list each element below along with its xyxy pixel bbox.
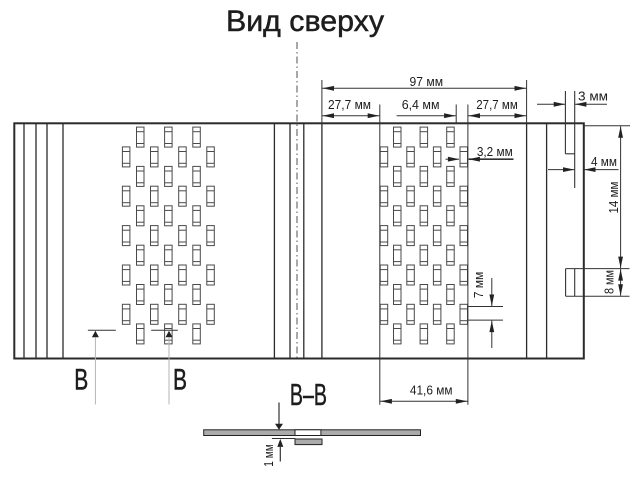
svg-text:1 мм: 1 мм	[262, 444, 276, 467]
svg-text:В–В: В–В	[290, 377, 327, 412]
svg-text:Вид сверху: Вид сверху	[226, 5, 384, 38]
svg-text:27,7 мм: 27,7 мм	[328, 98, 371, 112]
svg-text:В: В	[173, 364, 187, 397]
svg-text:3 мм: 3 мм	[578, 90, 608, 104]
svg-text:27,7 мм: 27,7 мм	[476, 98, 518, 112]
svg-text:8 мм: 8 мм	[602, 270, 616, 294]
svg-text:6,4 мм: 6,4 мм	[402, 98, 440, 112]
svg-text:97 мм: 97 мм	[410, 75, 444, 89]
svg-text:41,6 мм: 41,6 мм	[410, 384, 453, 398]
svg-text:3,2 мм: 3,2 мм	[477, 145, 513, 159]
svg-text:В: В	[74, 364, 88, 397]
svg-text:7 мм: 7 мм	[472, 272, 486, 299]
svg-text:14 мм: 14 мм	[607, 182, 621, 214]
svg-text:4 мм: 4 мм	[591, 155, 617, 169]
